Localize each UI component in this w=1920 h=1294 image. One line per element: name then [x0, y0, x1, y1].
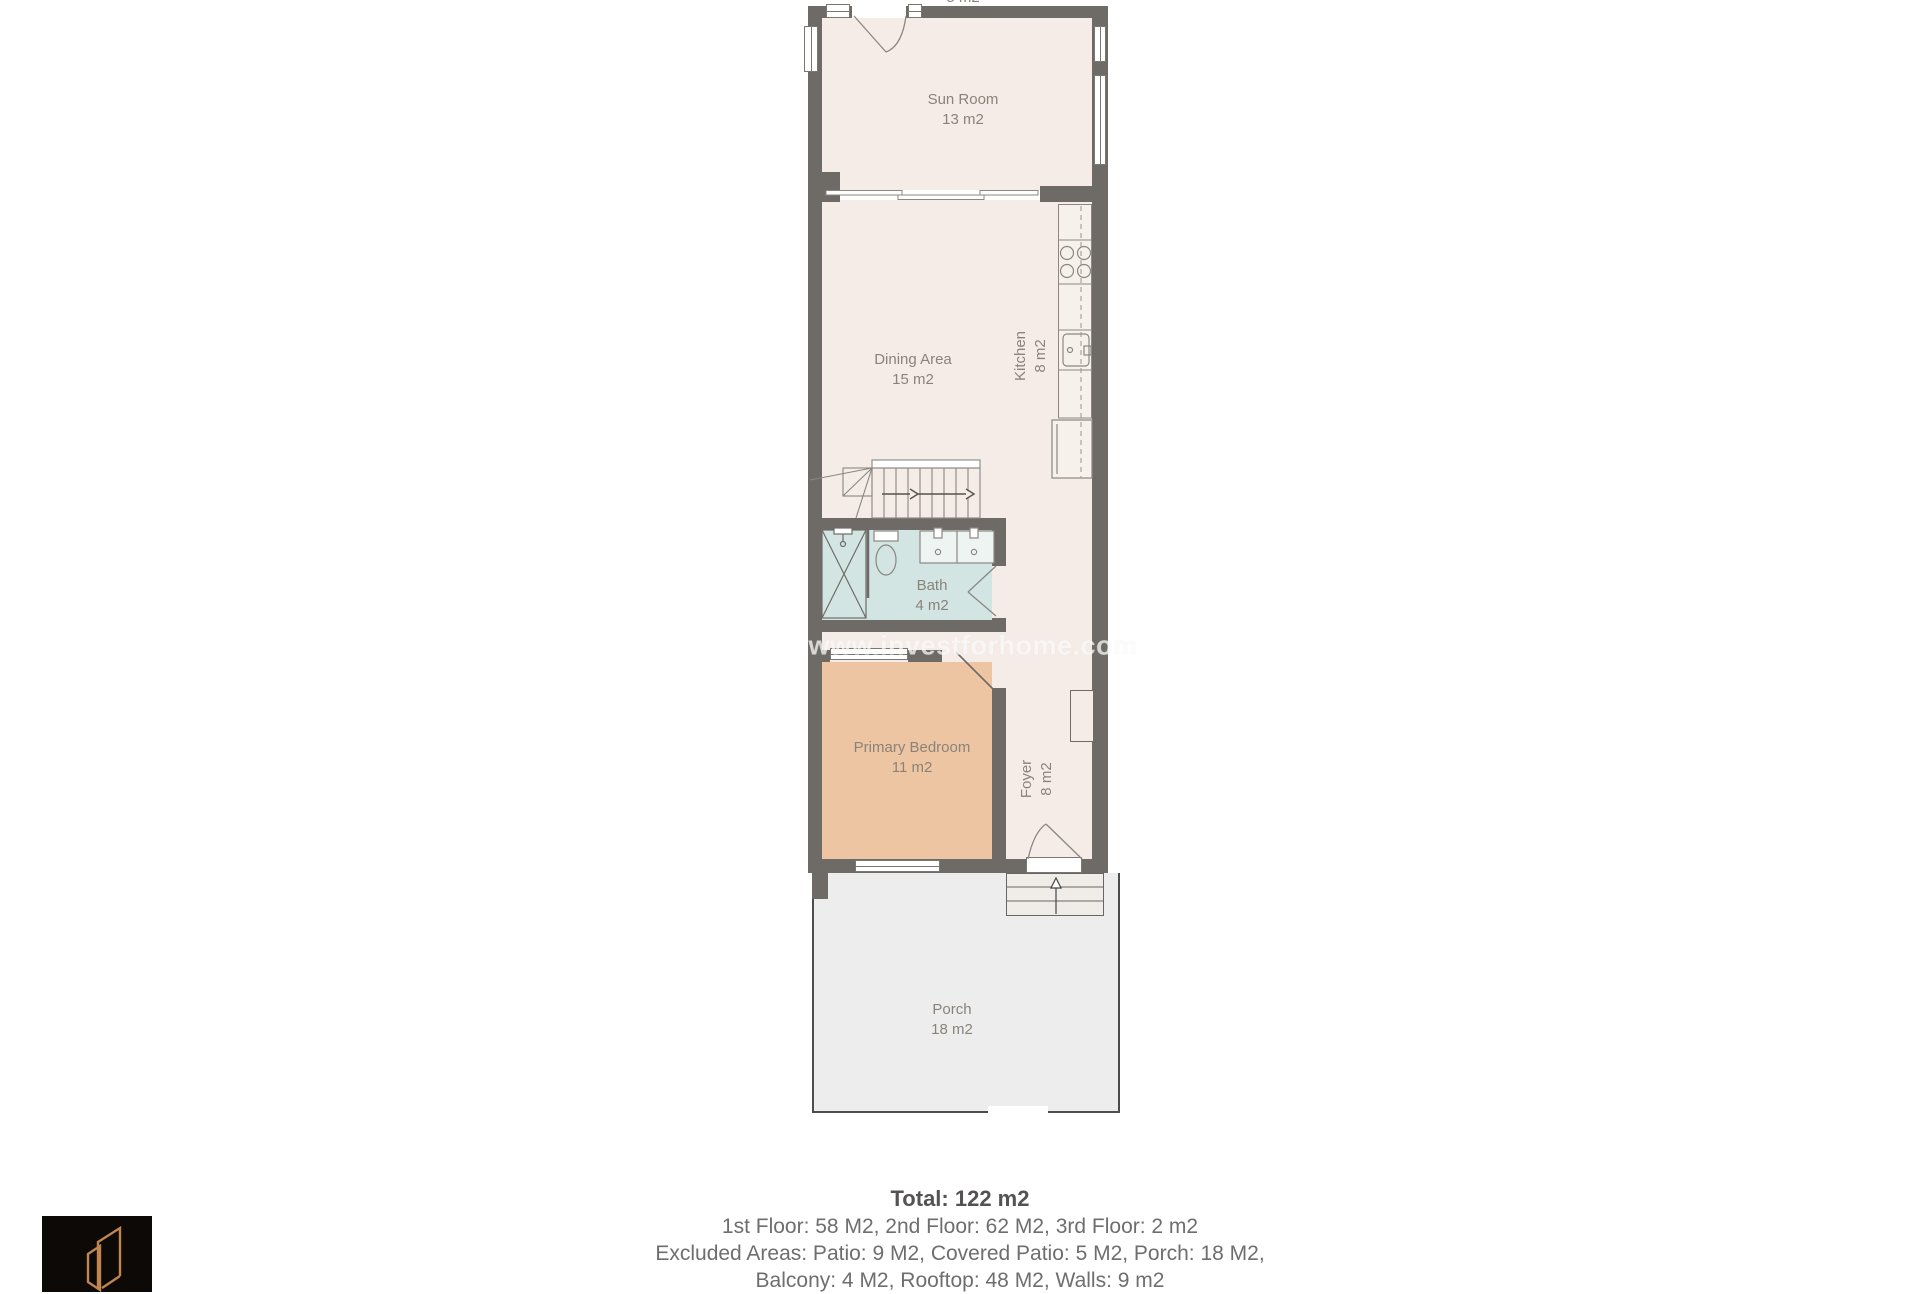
- bath-label: Bath 4 m2: [915, 576, 948, 616]
- floor-plan-page: { "watermark": { "text": "www.investforh…: [0, 0, 1920, 1280]
- dining-area-label: Dining Area 15 m2: [874, 350, 952, 390]
- window-top-right: [908, 4, 922, 18]
- room-area: 4 m2: [915, 596, 948, 616]
- room-name: Kitchen: [1011, 331, 1031, 381]
- room-name: Bath: [915, 576, 948, 596]
- sunroom-entry-opening: [852, 4, 906, 18]
- wall-sunroom-bottom-left: [808, 172, 840, 202]
- bath-floor: [822, 530, 992, 622]
- wall-porch-stub: [812, 873, 828, 899]
- room-area: 8 m2: [1031, 331, 1051, 381]
- room-name: Porch: [931, 1000, 973, 1020]
- wall-bedroom-right: [992, 688, 1006, 859]
- room-area: 13 m2: [928, 110, 999, 130]
- room-area: 18 m2: [931, 1020, 973, 1040]
- entry-door-sill: [1026, 857, 1082, 873]
- company-logo: [42, 1216, 152, 1292]
- window-left-exterior: [804, 26, 818, 72]
- porch-steps: [1006, 873, 1104, 916]
- room-name: Dining Area: [874, 350, 952, 370]
- top-partial-room-label: 5 m2: [946, 0, 979, 8]
- area-summary: Total: 122 m2 1st Floor: 58 M2, 2nd Floo…: [0, 1184, 1920, 1294]
- summary-total: Total: 122 m2: [0, 1184, 1920, 1213]
- foyer-label: Foyer 8 m2: [1017, 760, 1057, 798]
- buildings-logo-icon: [42, 1216, 152, 1292]
- window-right-lower: [1094, 75, 1106, 165]
- room-area: 11 m2: [854, 758, 971, 778]
- window-bedroom-bottom: [855, 860, 940, 872]
- porch-outline-gap: [988, 1106, 1048, 1116]
- room-name: Sun Room: [928, 90, 999, 110]
- wall-bath-top: [808, 518, 1006, 530]
- wall-sunroom-bottom-right: [1040, 186, 1092, 202]
- room-name: Foyer: [1017, 760, 1037, 798]
- watermark-text: www.investforhome.com: [808, 631, 1137, 662]
- bath-door-opening: [992, 566, 1006, 618]
- window-top-left: [826, 4, 850, 18]
- summary-excluded: Excluded Areas: Patio: 9 M2, Covered Pat…: [0, 1240, 1920, 1267]
- foyer-closet: [1070, 690, 1094, 742]
- summary-excluded-2: Balcony: 4 M2, Rooftop: 48 M2, Walls: 9 …: [0, 1267, 1920, 1294]
- kitchen-label: Kitchen 8 m2: [1011, 331, 1051, 381]
- room-area: 15 m2: [874, 370, 952, 390]
- room-name: Primary Bedroom: [854, 738, 971, 758]
- window-right-upper: [1094, 26, 1106, 62]
- room-area: 8 m2: [1037, 760, 1057, 798]
- sliding-door-band: [822, 190, 1040, 200]
- porch-label: Porch 18 m2: [931, 1000, 973, 1040]
- wall-left: [808, 6, 822, 873]
- sun-room-label: Sun Room 13 m2: [928, 90, 999, 130]
- summary-floors: 1st Floor: 58 M2, 2nd Floor: 62 M2, 3rd …: [0, 1213, 1920, 1240]
- primary-bedroom-label: Primary Bedroom 11 m2: [854, 738, 971, 778]
